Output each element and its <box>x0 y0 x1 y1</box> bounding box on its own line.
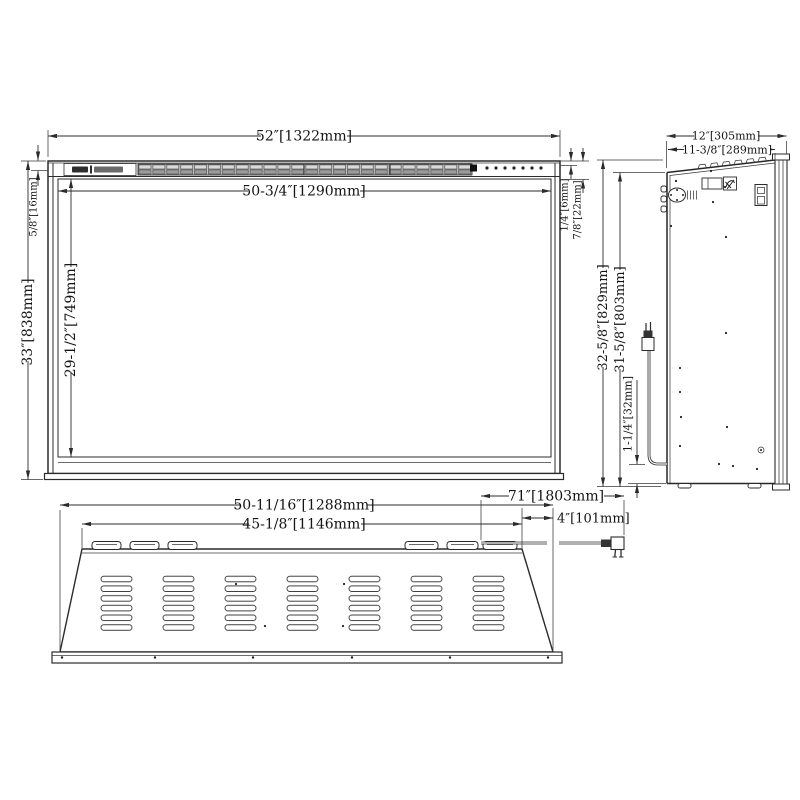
control-dot-icon <box>485 166 488 169</box>
dim-label: 32-5/8″[829mm] <box>596 264 611 370</box>
front-view: 52″[1322mm] 50-3/4″[1290mm] 33″[838mm] 2… <box>20 129 589 480</box>
dim-label: 5/8″[16mm] <box>29 177 40 236</box>
power-button-icon <box>470 165 477 172</box>
foot-tab <box>130 542 159 550</box>
cord-core <box>649 350 667 464</box>
fan-motor <box>669 188 697 202</box>
dim-label: 1-1/4″[32mm] <box>622 376 635 452</box>
glass-opening <box>58 179 551 457</box>
top-air-grille <box>138 164 472 175</box>
front-bottom-trim <box>45 474 564 480</box>
plug-head <box>644 331 653 338</box>
junction-box <box>755 185 767 206</box>
base-flange <box>52 652 562 663</box>
motor-bolt <box>682 194 684 196</box>
plug-prongs <box>615 550 621 558</box>
plate <box>702 178 722 189</box>
control-dot-icon <box>503 166 506 169</box>
hinge-bump <box>661 196 667 202</box>
rating-label-plate <box>702 178 722 189</box>
hinge-bump <box>661 206 667 212</box>
page: 52″[1322mm] 50-3/4″[1290mm] 33″[838mm] 2… <box>0 0 800 800</box>
plug-prongs <box>646 322 651 331</box>
dim-label: 71″[1803mm] <box>508 489 604 505</box>
fan-wheel <box>724 177 737 190</box>
hinge-bump <box>661 186 667 192</box>
brand-logo-divider <box>90 166 92 174</box>
foot-tab <box>405 542 438 550</box>
dim-side-body-depth: 11-3/8″[289mm] <box>668 143 775 160</box>
dim-side-cord-exit: 1-1/4″[32mm] <box>622 376 667 498</box>
dim-cord-offset: 4″[101mm] <box>522 512 630 527</box>
dim-label: 31-5/8″[803mm] <box>613 266 628 372</box>
dim-label: 1/4″[6mm] <box>560 178 571 231</box>
dim-label: 52″[1322mm] <box>256 129 352 145</box>
control-dot-icon <box>539 166 542 169</box>
bottom-view: 50-11/16″[1288mm] 45-1/8″[1146mm] 71″[18… <box>52 489 630 664</box>
motor-bolt <box>676 199 678 201</box>
dim-label: 50-3/4″[1290mm] <box>242 184 365 200</box>
front-flange-edge <box>775 157 787 487</box>
control-dot-icon <box>494 166 497 169</box>
brand-logo-left-word <box>72 167 88 173</box>
dim-label: 12″[305mm] <box>692 130 761 143</box>
dim-label: 45-1/8″[1146mm] <box>242 517 365 533</box>
flange-bottom-cap <box>773 484 790 490</box>
fireplace-dimension-diagram: 52″[1322mm] 50-3/4″[1290mm] 33″[838mm] 2… <box>0 0 800 800</box>
brand-logo-right-word <box>94 167 123 173</box>
dim-label: 50-11/16″[1288mm] <box>233 498 374 514</box>
motor-coil <box>688 191 697 200</box>
dim-label: 33″[838mm] <box>20 278 36 365</box>
ext-line <box>560 161 589 166</box>
dim-label: 7/8″[22mm] <box>573 180 584 239</box>
foot-tab <box>168 542 197 550</box>
dim-front-overall-width: 52″[1322mm] <box>48 129 560 158</box>
knockout-center <box>760 449 762 451</box>
side-power-cord <box>642 322 667 464</box>
cord-outline <box>649 350 667 464</box>
side-top-edge <box>667 160 775 173</box>
plug-head <box>611 537 624 550</box>
control-dot-icon <box>521 166 524 169</box>
vent-louvers <box>100 575 506 633</box>
motor-bolt <box>676 189 678 191</box>
control-dot-icon <box>530 166 533 169</box>
side-foot <box>678 484 691 489</box>
fan-housing <box>724 177 737 190</box>
plug-body <box>642 338 654 351</box>
dim-label: 4″[101mm] <box>557 512 630 527</box>
motor-bolt <box>670 194 672 196</box>
side-foot <box>748 484 761 489</box>
ext-line <box>628 465 666 484</box>
foot-tab <box>447 542 478 550</box>
control-dot-icon <box>512 166 515 169</box>
foot-tab <box>92 542 121 550</box>
dim-label: 29-1/2″[749mm] <box>63 263 79 378</box>
screw-dots <box>670 170 758 470</box>
brand-logo-plate <box>64 164 136 176</box>
dim-label: 11-3/8″[289mm] <box>682 143 772 156</box>
plug-boot <box>601 540 611 548</box>
dim-front-frame-top: 5/8″[16mm] <box>29 145 49 237</box>
side-view: 12″[305mm] 11-3/8″[289mm] 32-5/8″[829mm]… <box>596 129 790 498</box>
